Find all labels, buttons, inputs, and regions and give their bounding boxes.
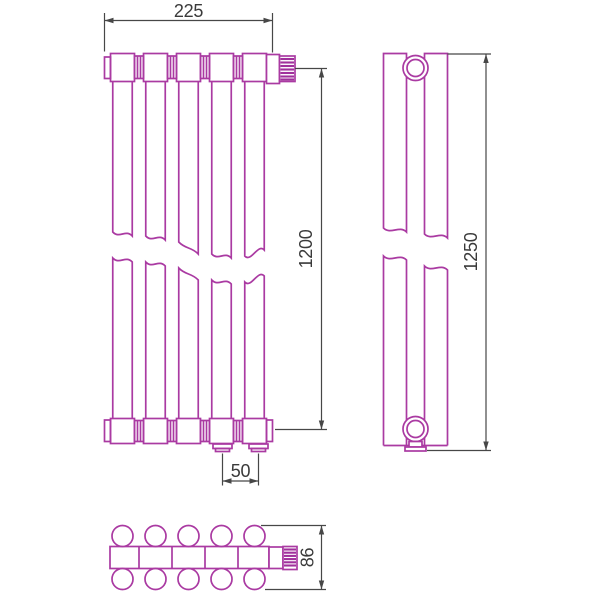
column-tube-lower bbox=[146, 262, 166, 419]
tube-section bbox=[211, 569, 232, 590]
side-view bbox=[384, 54, 448, 452]
column-tube-lower bbox=[113, 258, 133, 419]
threaded-plug bbox=[280, 56, 296, 82]
bottom-fitting-right bbox=[249, 444, 268, 452]
column-tube-upper bbox=[212, 82, 232, 259]
dimension-depth-label: 86 bbox=[298, 548, 318, 568]
tube-section bbox=[244, 526, 265, 547]
collector-band bbox=[110, 547, 269, 569]
bottom-view bbox=[110, 526, 297, 590]
arrowhead bbox=[105, 18, 114, 23]
column-tube-upper bbox=[245, 82, 265, 258]
bottom-connectors bbox=[135, 421, 243, 442]
radiator-column bbox=[177, 54, 201, 444]
column-tube-upper bbox=[179, 82, 199, 255]
arrowhead bbox=[319, 581, 324, 590]
column-top-collar bbox=[177, 54, 201, 82]
arrowhead bbox=[483, 54, 488, 63]
tube-section bbox=[145, 569, 166, 590]
bottom-fitting-left bbox=[213, 444, 232, 452]
tube-row-bottom bbox=[112, 569, 265, 590]
tube-section bbox=[112, 526, 133, 547]
valve-body bbox=[267, 55, 280, 84]
left-end-cap-top bbox=[105, 57, 111, 79]
side-tube-front-upper bbox=[384, 54, 407, 233]
valve-body-bottom-view bbox=[269, 547, 283, 569]
column-tube-lower bbox=[179, 268, 199, 419]
left-end-cap-bottom bbox=[105, 420, 111, 442]
radiator-column bbox=[210, 54, 234, 444]
radiator-column bbox=[243, 54, 267, 444]
arrowhead bbox=[264, 18, 273, 23]
tube-row-top bbox=[112, 526, 265, 547]
right-end-cap-bottom bbox=[267, 420, 273, 442]
technical-drawing-page: 225 1200 50 1250 86 bbox=[0, 0, 600, 600]
arrowhead bbox=[319, 421, 324, 430]
column-bottom-collar bbox=[144, 419, 168, 444]
column-tube-upper bbox=[146, 82, 166, 241]
arrowhead bbox=[483, 442, 488, 451]
column-top-collar bbox=[210, 54, 234, 82]
column-bottom-collar bbox=[210, 419, 234, 444]
dimension-width-label: 225 bbox=[174, 1, 203, 21]
dimension-height-1250: 1250 bbox=[427, 54, 491, 451]
column-bottom-collar bbox=[177, 419, 201, 444]
column-tube-lower bbox=[212, 280, 232, 419]
column-top-collar bbox=[144, 54, 168, 82]
threaded-plug-bottom-view bbox=[283, 547, 297, 570]
dimension-height-front-label: 1200 bbox=[296, 229, 316, 268]
dimension-height-1200: 1200 bbox=[275, 69, 327, 430]
column-tube-lower bbox=[245, 274, 265, 418]
column-top-collar bbox=[111, 54, 135, 82]
tube-section bbox=[211, 526, 232, 547]
column-bottom-collar bbox=[111, 419, 135, 444]
radiator-column bbox=[144, 54, 168, 444]
tube-section bbox=[244, 569, 265, 590]
tube-section bbox=[145, 526, 166, 547]
radiator-column bbox=[111, 54, 135, 444]
side-tube-front-lower bbox=[384, 256, 407, 446]
column-top-collar bbox=[243, 54, 267, 82]
dimension-width-225: 225 bbox=[105, 1, 273, 53]
column-bottom-collar bbox=[243, 419, 267, 444]
arrowhead bbox=[319, 69, 324, 78]
side-tube-back-lower bbox=[425, 266, 448, 446]
dimension-pitch-50: 50 bbox=[223, 454, 259, 486]
tube-section bbox=[178, 526, 199, 547]
column-tube-upper bbox=[113, 82, 133, 237]
side-tube-back-upper bbox=[425, 54, 448, 239]
arrowhead bbox=[250, 478, 259, 483]
side-bottom-fitting bbox=[405, 442, 426, 452]
technical-drawing: 225 1200 50 1250 86 bbox=[0, 0, 600, 600]
dimension-pitch-label: 50 bbox=[231, 461, 251, 481]
arrowhead bbox=[319, 526, 324, 535]
tube-section bbox=[112, 569, 133, 590]
front-view bbox=[105, 54, 296, 452]
tube-section bbox=[178, 569, 199, 590]
top-connectors bbox=[135, 56, 243, 79]
dimension-height-side-label: 1250 bbox=[461, 232, 481, 271]
